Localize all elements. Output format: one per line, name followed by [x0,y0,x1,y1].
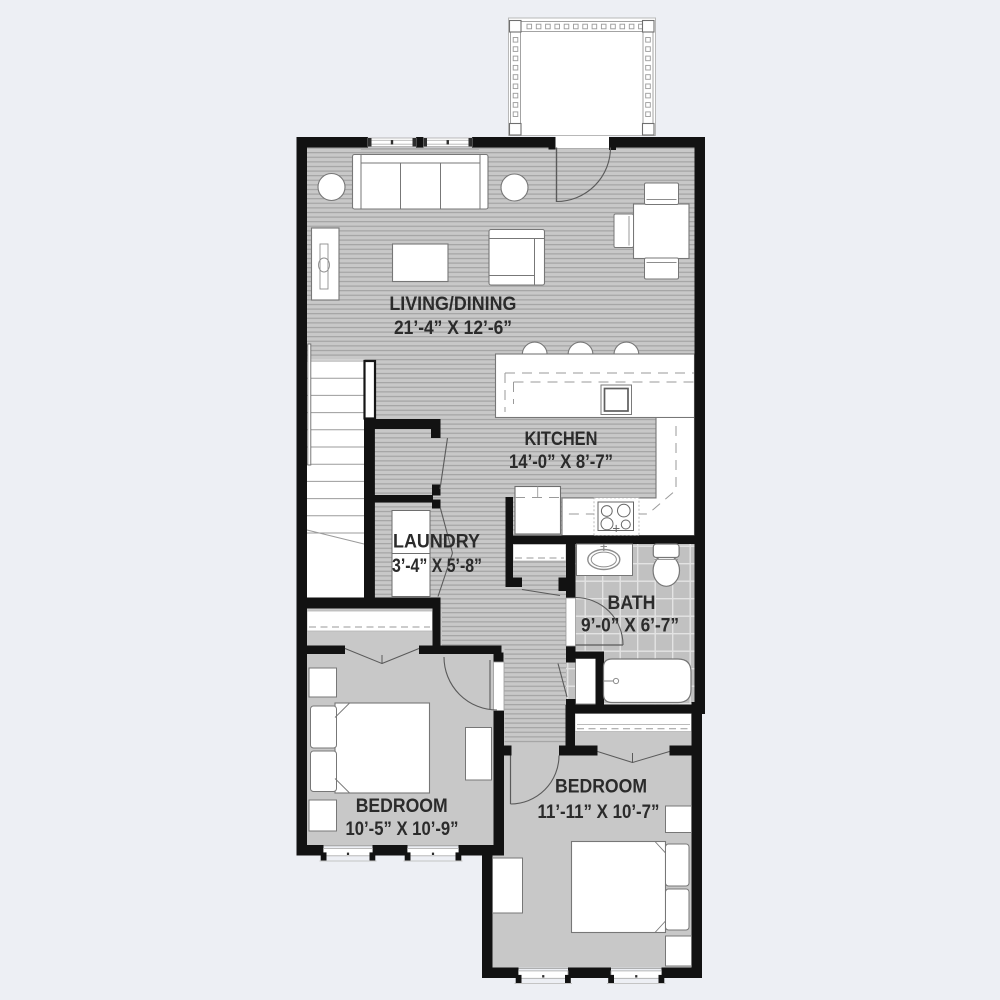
svg-text:BEDROOM: BEDROOM [555,777,647,798]
svg-text:BATH: BATH [608,593,656,614]
svg-text:10’-5” X 10’-9”: 10’-5” X 10’-9” [346,819,459,840]
svg-text:9’-0” X 6’-7”: 9’-0” X 6’-7” [581,616,679,637]
svg-text:21’-4” X 12’-6”: 21’-4” X 12’-6” [394,318,512,339]
svg-text:BEDROOM: BEDROOM [356,796,448,817]
svg-text:11’-11” X 10’-7”: 11’-11” X 10’-7” [538,802,660,823]
svg-text:14’-0” X 8’-7”: 14’-0” X 8’-7” [509,452,613,473]
svg-text:LIVING/DINING: LIVING/DINING [389,294,516,315]
svg-text:3’-4” X 5’-8”: 3’-4” X 5’-8” [392,556,482,577]
svg-text:KITCHEN: KITCHEN [525,429,598,450]
svg-text:LAUNDRY: LAUNDRY [393,532,480,553]
